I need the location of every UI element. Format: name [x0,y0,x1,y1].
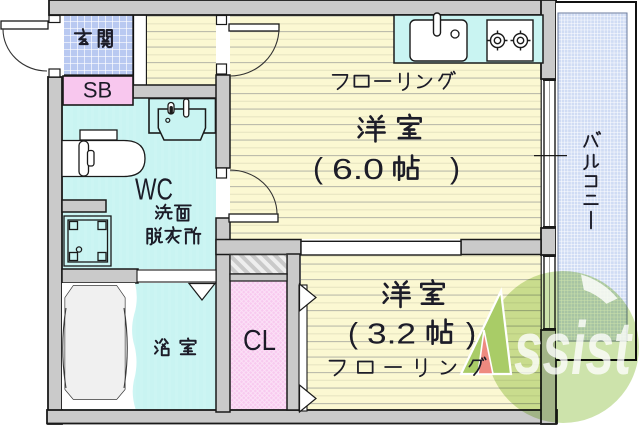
svg-text:SB: SB [83,78,112,103]
svg-text:(: ( [313,153,323,186]
svg-text:): ) [450,153,460,186]
svg-text:WC: WC [135,173,173,207]
svg-text:3.2: 3.2 [367,318,416,350]
svg-text:): ) [466,318,476,351]
svg-text:6.0: 6.0 [332,154,384,186]
svg-text:CL: CL [243,325,276,357]
svg-text:ssist: ssist [514,306,633,390]
svg-text:(: ( [348,318,358,351]
